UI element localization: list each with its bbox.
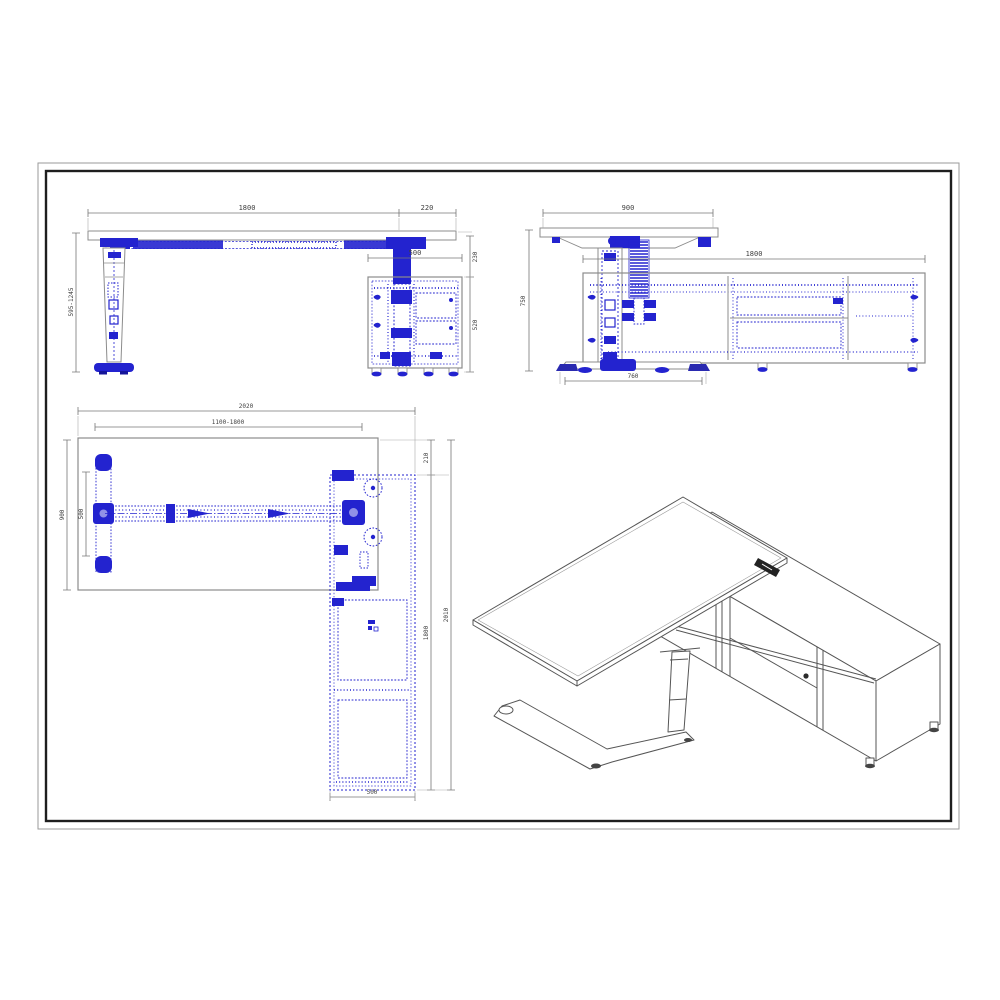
technical-drawing-canvas: 1800 220 500 595-1245 230 520 (0, 0, 1000, 1000)
dim-plan-foot-length: 500 (78, 508, 85, 519)
side-gas-spring (622, 240, 656, 324)
side-view: 900 1800 750 760 (520, 204, 925, 385)
front-view: 1800 220 500 595-1245 230 520 (68, 204, 479, 376)
dim-side-foot: 760 (628, 373, 639, 380)
dim-plan-cabinet-length: 1800 (423, 625, 430, 640)
plan-desk-top (78, 438, 378, 590)
dim-plan-cabinet-depth: 500 (367, 789, 378, 796)
dim-plan-overall: 2020 (239, 403, 254, 410)
dim-front-height-range: 595-1245 (68, 287, 75, 316)
dim-front-overhang: 220 (421, 204, 434, 212)
dim-front-desk-width: 1800 (239, 204, 256, 212)
side-desk-top (540, 228, 718, 237)
iso-lock-keyhole (803, 673, 808, 678)
dim-plan-slide-range: 1100-1800 (212, 419, 245, 426)
dim-front-gap: 230 (472, 251, 479, 262)
side-base-plate (556, 359, 710, 373)
drawing-sheet: 1800 220 500 595-1245 230 520 (0, 0, 1000, 1000)
isometric-view (473, 497, 940, 769)
dim-plan-depth: 900 (59, 509, 66, 520)
dim-side-depth: 900 (622, 204, 635, 212)
dim-plan-offset: 210 (423, 452, 430, 463)
dim-side-cabinet-length: 1800 (746, 250, 763, 258)
dim-side-height: 750 (520, 295, 527, 306)
front-left-leg (94, 238, 138, 375)
front-cabinet (368, 277, 462, 376)
dim-front-cabinet-width: 500 (409, 249, 422, 257)
plan-view: 2020 1100-1800 900 500 210 1800 2010 500 (59, 403, 455, 801)
dim-plan-overall-depth: 2010 (443, 607, 450, 622)
dim-front-cabinet-height: 520 (472, 319, 479, 330)
side-cabinet (583, 273, 925, 372)
